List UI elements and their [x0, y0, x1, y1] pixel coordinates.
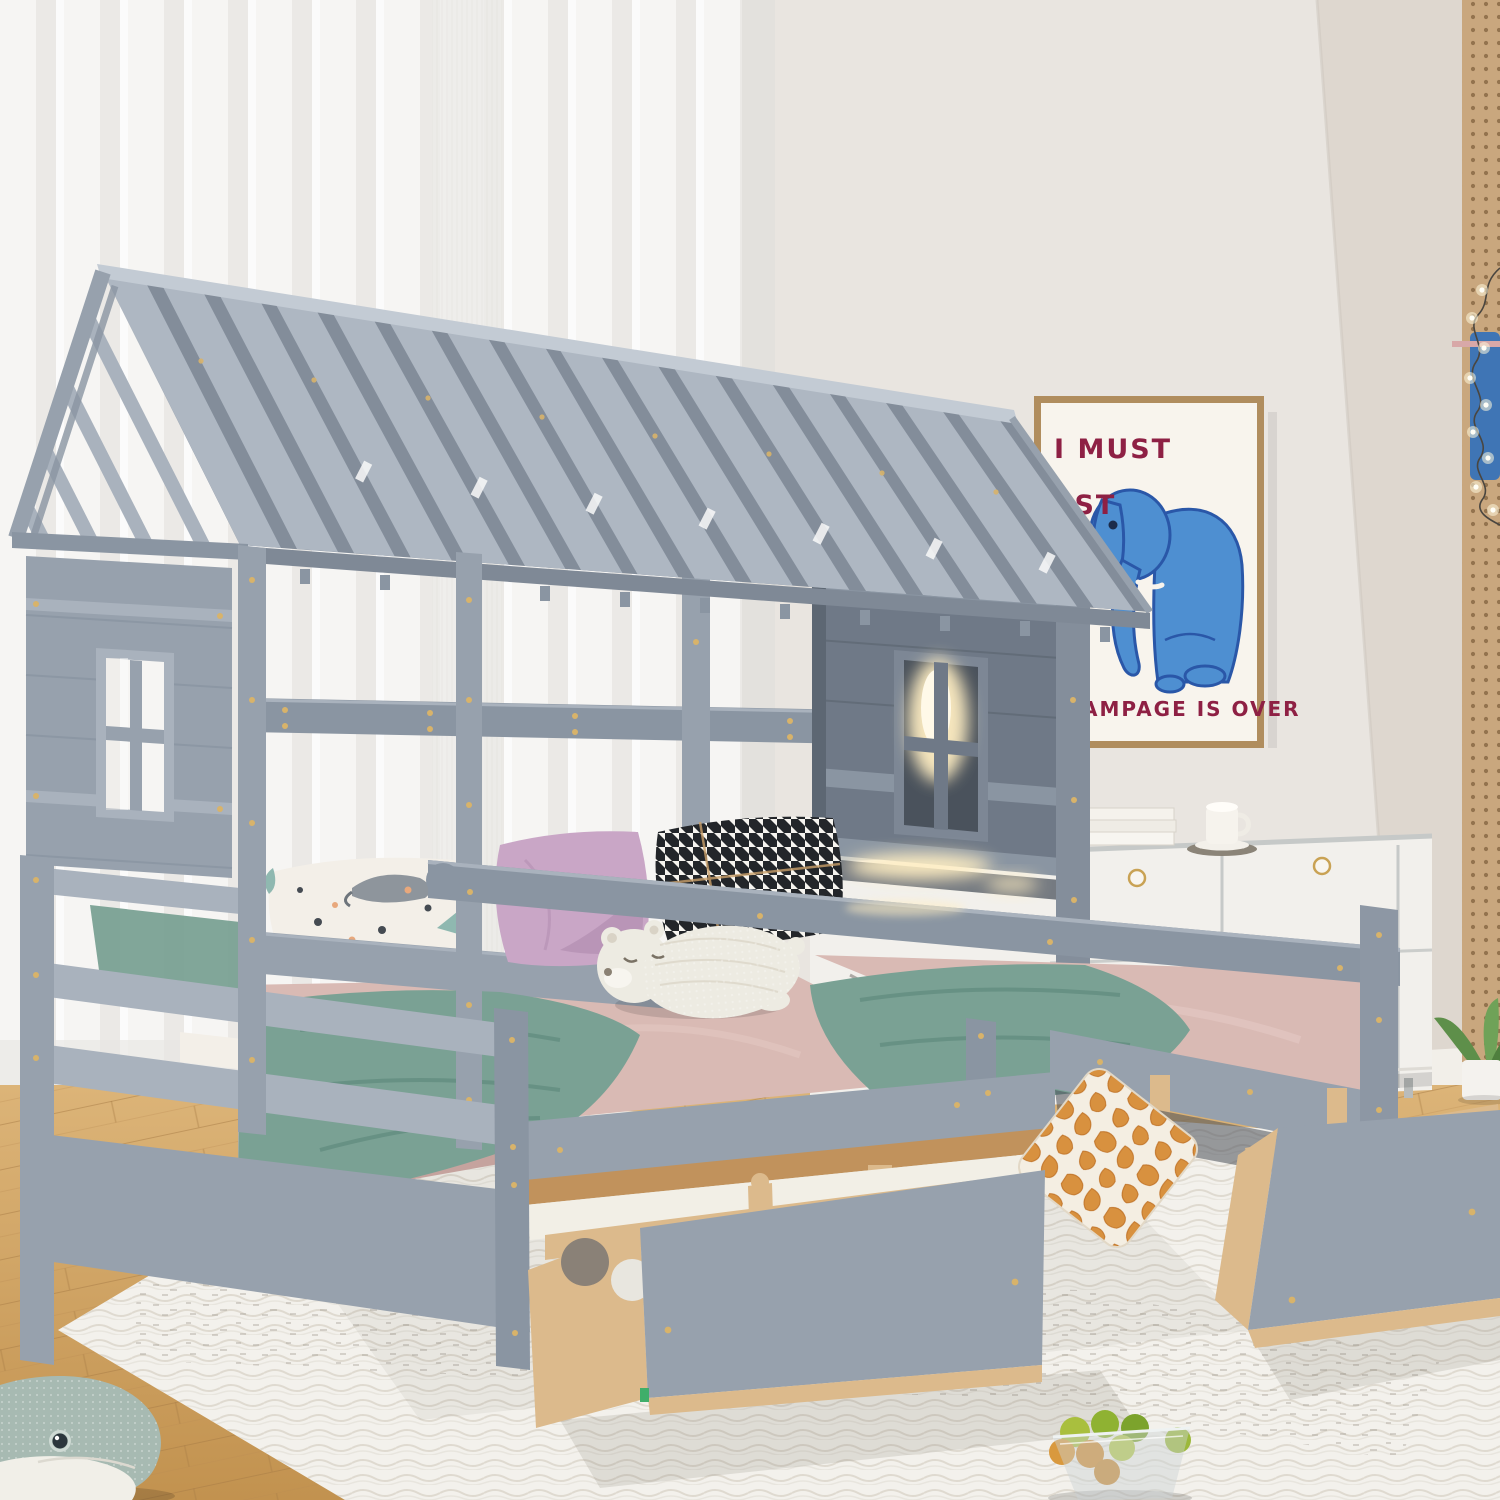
fence-left-post	[20, 855, 54, 1365]
right-window	[894, 650, 988, 842]
bear-plush	[597, 919, 805, 1025]
elephant-eye	[1109, 521, 1118, 530]
pegboard-shelf	[1452, 341, 1500, 347]
left-headboard-wall	[26, 556, 232, 878]
rail-end-cap	[426, 863, 460, 897]
poster-line3: AMPAGE IS OVER	[1082, 697, 1301, 721]
left-corner-post	[238, 545, 266, 1135]
whale-eye	[53, 1434, 68, 1449]
poster-line1: I MUST	[1054, 434, 1172, 465]
drawer-caster	[640, 1388, 649, 1402]
cabinet-knob	[1314, 858, 1330, 874]
books-stack	[1078, 808, 1176, 845]
cabinet-knob	[1129, 870, 1145, 886]
drawer-front	[1248, 1110, 1500, 1330]
front-roof-post	[456, 552, 482, 1150]
house-bed-scene: I MUST EST AMPAGE IS OVER	[0, 0, 1500, 1500]
fence-end-post	[494, 1008, 530, 1370]
left-window	[96, 648, 174, 822]
led-strip-glow	[848, 853, 992, 879]
room-photo: I MUST EST AMPAGE IS OVER	[0, 0, 1500, 1500]
